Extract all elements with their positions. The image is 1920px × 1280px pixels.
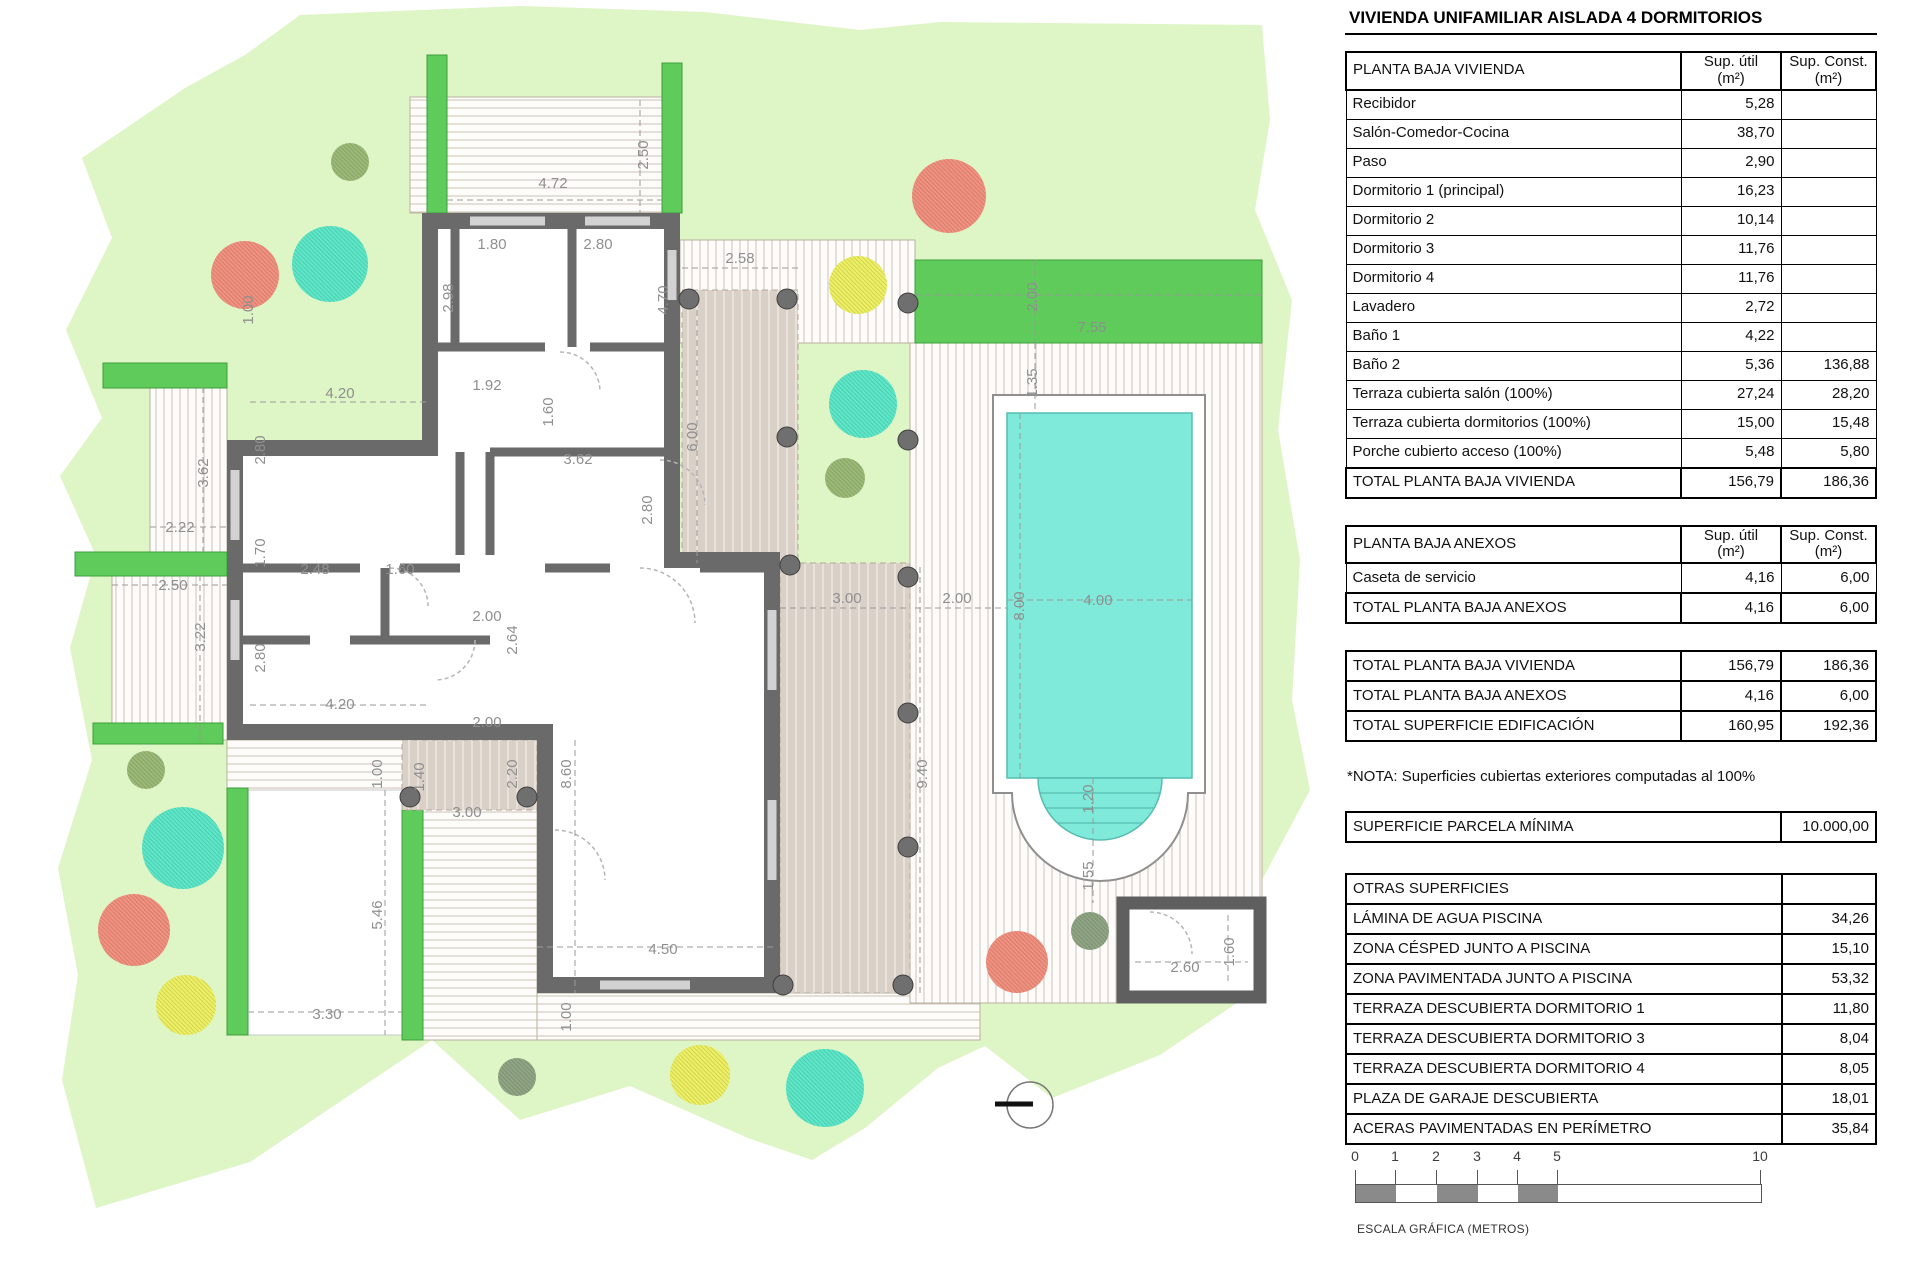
scale-tick-label: 10 bbox=[1748, 1148, 1772, 1164]
scale-tick bbox=[1477, 1170, 1478, 1184]
dimension-label: 2.80 bbox=[639, 495, 656, 524]
table-row: Terraza cubierta salón (100%)27,2428,20 bbox=[1346, 380, 1876, 409]
table-total-row: TOTAL PLANTA BAJA ANEXOS4,166,00 bbox=[1346, 593, 1876, 623]
scale-tick bbox=[1436, 1170, 1437, 1184]
tree bbox=[670, 1045, 730, 1105]
dimension-label: 3.62 bbox=[195, 458, 212, 487]
dimension-label: 9.40 bbox=[914, 759, 931, 788]
scale-caption: ESCALA GRÁFICA (METROS) bbox=[1357, 1222, 1529, 1236]
note-text: *NOTA: Superficies cubiertas exteriores … bbox=[1347, 768, 1877, 785]
dimension-label: 1.00 bbox=[240, 295, 257, 324]
summary-row: TOTAL PLANTA BAJA ANEXOS4,166,00 bbox=[1346, 681, 1876, 711]
dimension-label: 2.80 bbox=[583, 236, 612, 253]
table-row: Dormitorio 311,76 bbox=[1346, 235, 1876, 264]
table-row: Lavadero2,72 bbox=[1346, 293, 1876, 322]
scale-tick-label: 5 bbox=[1545, 1148, 1569, 1164]
dimension-label: 4.20 bbox=[325, 385, 354, 402]
table-row: Dormitorio 1 (principal)16,23 bbox=[1346, 177, 1876, 206]
scale-tick-label: 4 bbox=[1505, 1148, 1529, 1164]
dimension-label: 1.92 bbox=[472, 377, 501, 394]
dimension-label: 2.98 bbox=[440, 283, 457, 312]
tree bbox=[829, 256, 887, 314]
tree bbox=[142, 807, 224, 889]
structural-column bbox=[898, 293, 918, 313]
area-tables-panel: VIVIENDA UNIFAMILIAR AISLADA 4 DORMITORI… bbox=[1345, 6, 1877, 1171]
dimension-label: 1.60 bbox=[1221, 937, 1238, 966]
table-row: Baño 25,36136,88 bbox=[1346, 351, 1876, 380]
dimension-label: 1.20 bbox=[1080, 784, 1097, 813]
dimension-label: 2.00 bbox=[472, 714, 501, 731]
scale-tick-label: 3 bbox=[1465, 1148, 1489, 1164]
tree bbox=[1071, 912, 1109, 950]
dimension-label: 3.00 bbox=[452, 804, 481, 821]
dimension-label: 2.80 bbox=[252, 643, 269, 672]
summary-row: TOTAL PLANTA BAJA VIVIENDA156,79186,36 bbox=[1346, 651, 1876, 681]
dimension-label: 8.60 bbox=[558, 759, 575, 788]
structural-column bbox=[898, 703, 918, 723]
table-row: Baño 14,22 bbox=[1346, 322, 1876, 351]
structural-column bbox=[780, 555, 800, 575]
otras-header-row: OTRAS SUPERFICIES bbox=[1346, 874, 1876, 904]
tree bbox=[156, 975, 216, 1035]
tree bbox=[127, 751, 165, 789]
structural-column bbox=[898, 567, 918, 587]
tree bbox=[292, 226, 368, 302]
table-row: Salón-Comedor-Cocina38,70 bbox=[1346, 119, 1876, 148]
scale-tick-label: 1 bbox=[1383, 1148, 1407, 1164]
dimension-label: 4.20 bbox=[325, 696, 354, 713]
dimension-label: 2.60 bbox=[1170, 959, 1199, 976]
dimension-label: 2.00 bbox=[942, 590, 971, 607]
dimension-label: 5.46 bbox=[369, 900, 386, 929]
table-row: Dormitorio 210,14 bbox=[1346, 206, 1876, 235]
dimension-label: 2.48 bbox=[300, 561, 329, 578]
dimension-label: 1.00 bbox=[558, 1002, 575, 1031]
dimension-label: 7.55 bbox=[1077, 319, 1106, 336]
otras-table: OTRAS SUPERFICIESLÁMINA DE AGUA PISCINA3… bbox=[1345, 873, 1877, 1145]
scale-tick-label: 0 bbox=[1343, 1148, 1367, 1164]
dimension-label: 4.50 bbox=[648, 941, 677, 958]
table-row: Paso2,90 bbox=[1346, 148, 1876, 177]
dimension-label: 1.55 bbox=[1080, 861, 1097, 890]
dimension-label: 1.40 bbox=[411, 762, 428, 791]
scale-tick bbox=[1355, 1170, 1356, 1184]
dimension-label: 2.00 bbox=[472, 608, 501, 625]
tree bbox=[986, 931, 1048, 993]
dimension-label: 6.00 bbox=[684, 422, 701, 451]
tree bbox=[786, 1049, 864, 1127]
tree bbox=[98, 894, 170, 966]
dimension-label: 4.00 bbox=[1083, 592, 1112, 609]
structural-column bbox=[898, 430, 918, 450]
scale-tick bbox=[1557, 1170, 1558, 1184]
tree bbox=[912, 159, 986, 233]
pool bbox=[993, 395, 1205, 881]
tree bbox=[498, 1058, 536, 1096]
tree bbox=[825, 458, 865, 498]
dimension-label: 2.50 bbox=[635, 140, 652, 169]
dimension-label: 3.62 bbox=[563, 451, 592, 468]
dimension-label: 1.60 bbox=[385, 561, 414, 578]
scale-segment bbox=[1518, 1185, 1558, 1202]
dimension-label: 1.00 bbox=[369, 759, 386, 788]
structural-column bbox=[679, 289, 699, 309]
site-plan-sheet: 4.722.501.802.802.582.984.701.004.201.92… bbox=[0, 0, 1920, 1280]
table-row: Terraza cubierta dormitorios (100%)15,00… bbox=[1346, 409, 1876, 438]
table-row: Dormitorio 411,76 bbox=[1346, 264, 1876, 293]
dimension-label: 1.70 bbox=[252, 538, 269, 567]
otras-row: LÁMINA DE AGUA PISCINA34,26 bbox=[1346, 904, 1876, 934]
area-table: PLANTA BAJA VIVIENDASup. útil(m²)Sup. Co… bbox=[1345, 51, 1877, 499]
otras-row: PLAZA DE GARAJE DESCUBIERTA18,01 bbox=[1346, 1084, 1876, 1114]
scale-bar bbox=[1355, 1184, 1762, 1203]
graphic-scale: ESCALA GRÁFICA (METROS) 01234510 bbox=[1355, 1148, 1825, 1248]
table-row: Caseta de servicio4,166,00 bbox=[1346, 563, 1876, 593]
dimension-label: 2.64 bbox=[504, 625, 521, 654]
dimension-label: 2.00 bbox=[1024, 282, 1041, 311]
scale-segment bbox=[1356, 1185, 1396, 1202]
otras-row: TERRAZA DESCUBIERTA DORMITORIO 111,80 bbox=[1346, 994, 1876, 1024]
summary-table: TOTAL PLANTA BAJA VIVIENDA156,79186,36TO… bbox=[1345, 650, 1877, 742]
tree bbox=[829, 370, 897, 438]
structural-column bbox=[898, 837, 918, 857]
dimension-label: 1.35 bbox=[1024, 368, 1041, 397]
dimension-label: 3.00 bbox=[832, 590, 861, 607]
scale-tick-label: 2 bbox=[1424, 1148, 1448, 1164]
scale-segment bbox=[1437, 1185, 1478, 1202]
dimension-label: 4.72 bbox=[538, 175, 567, 192]
structural-column bbox=[517, 787, 537, 807]
dimension-label: 2.50 bbox=[158, 577, 187, 594]
structural-column bbox=[773, 975, 793, 995]
scale-tick bbox=[1760, 1170, 1761, 1184]
scale-tick bbox=[1517, 1170, 1518, 1184]
area-table: PLANTA BAJA ANEXOSSup. útil(m²)Sup. Cons… bbox=[1345, 525, 1877, 625]
dimension-label: 2.80 bbox=[252, 435, 269, 464]
otras-row: TERRAZA DESCUBIERTA DORMITORIO 38,04 bbox=[1346, 1024, 1876, 1054]
dimension-label: 2.58 bbox=[725, 250, 754, 267]
table-header-row: PLANTA BAJA VIVIENDASup. útil(m²)Sup. Co… bbox=[1346, 52, 1876, 90]
dimension-label: 3.30 bbox=[312, 1006, 341, 1023]
site-plan-drawing: 4.722.501.802.802.582.984.701.004.201.92… bbox=[0, 0, 1345, 1280]
dimension-label: 8.00 bbox=[1011, 591, 1028, 620]
table-header-row: PLANTA BAJA ANEXOSSup. útil(m²)Sup. Cons… bbox=[1346, 526, 1876, 564]
dimension-label: 1.80 bbox=[477, 236, 506, 253]
dimension-label: 3.22 bbox=[192, 622, 209, 651]
table-row: Porche cubierto acceso (100%)5,485,80 bbox=[1346, 438, 1876, 468]
table-total-row: TOTAL PLANTA BAJA VIVIENDA156,79186,36 bbox=[1346, 468, 1876, 498]
structural-column bbox=[777, 427, 797, 447]
tree bbox=[331, 143, 369, 181]
dimension-label: 2.20 bbox=[504, 759, 521, 788]
table-row: Recibidor5,28 bbox=[1346, 90, 1876, 120]
summary-row: TOTAL SUPERFICIE EDIFICACIÓN160,95192,36 bbox=[1346, 711, 1876, 741]
caseta-servicio bbox=[1123, 903, 1260, 997]
parcela-table: SUPERFICIE PARCELA MÍNIMA10.000,00 bbox=[1345, 811, 1877, 843]
otras-row: ACERAS PAVIMENTADAS EN PERÍMETRO35,84 bbox=[1346, 1114, 1876, 1144]
otras-row: ZONA PAVIMENTADA JUNTO A PISCINA53,32 bbox=[1346, 964, 1876, 994]
structural-column bbox=[777, 289, 797, 309]
page-title: VIVIENDA UNIFAMILIAR AISLADA 4 DORMITORI… bbox=[1345, 6, 1877, 35]
dimension-label: 4.70 bbox=[655, 285, 672, 314]
otras-row: TERRAZA DESCUBIERTA DORMITORIO 48,05 bbox=[1346, 1054, 1876, 1084]
parcela-row: SUPERFICIE PARCELA MÍNIMA10.000,00 bbox=[1346, 812, 1876, 842]
otras-row: ZONA CÉSPED JUNTO A PISCINA15,10 bbox=[1346, 934, 1876, 964]
structural-column bbox=[893, 975, 913, 995]
dimension-label: 2.22 bbox=[165, 519, 194, 536]
dimension-label: 1.60 bbox=[540, 397, 557, 426]
scale-tick bbox=[1395, 1170, 1396, 1184]
